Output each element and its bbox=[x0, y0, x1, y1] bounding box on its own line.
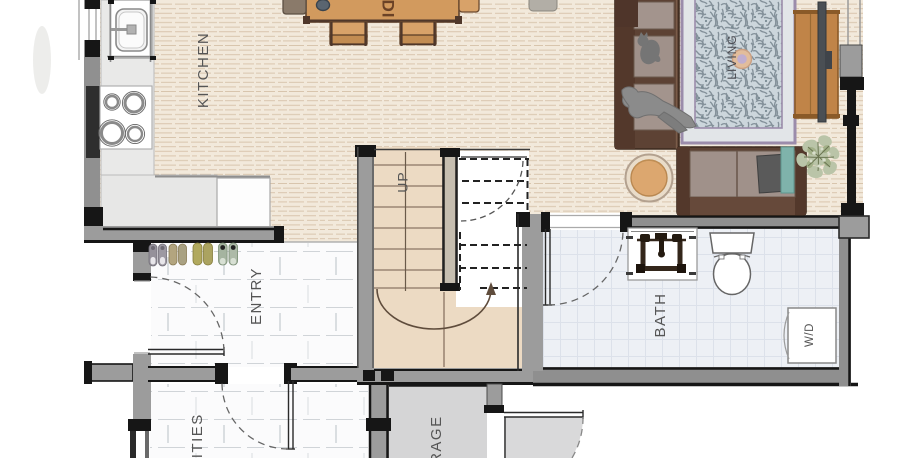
svg-text:KITCHEN: KITCHEN bbox=[195, 32, 212, 108]
svg-text:UTILITIES: UTILITIES bbox=[189, 413, 206, 458]
svg-text:ENTRY: ENTRY bbox=[248, 267, 265, 325]
svg-text:GARAGE: GARAGE bbox=[428, 415, 445, 458]
svg-text:LIVING: LIVING bbox=[725, 34, 739, 79]
svg-text:UP: UP bbox=[395, 171, 411, 192]
svg-text:DI: DI bbox=[379, 0, 398, 19]
svg-text:W/D: W/D bbox=[804, 323, 816, 347]
svg-text:BATH: BATH bbox=[652, 293, 669, 338]
